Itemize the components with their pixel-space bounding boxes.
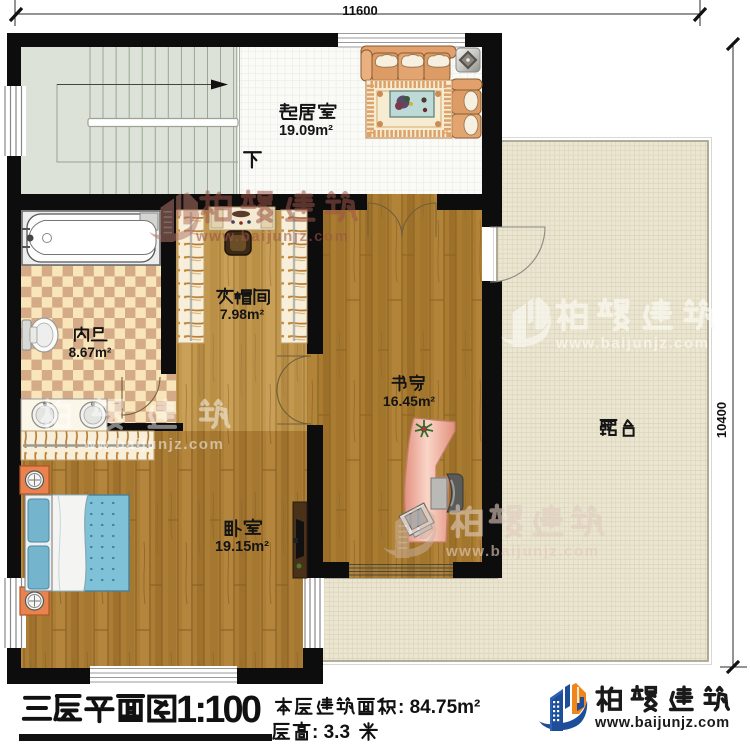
svg-text:1:100: 1:100 — [176, 689, 262, 731]
svg-text:www.baijunjz.com: www.baijunjz.com — [195, 228, 349, 245]
svg-text:www.baijunjz.com: www.baijunjz.com — [555, 335, 709, 352]
svg-text:: 84.75m²: : 84.75m² — [398, 697, 480, 718]
svg-text:ww.baijunjz.com: ww.baijunjz.com — [83, 436, 224, 453]
svg-text:8.67m²: 8.67m² — [69, 345, 112, 360]
svg-text:7.98m²: 7.98m² — [220, 306, 265, 322]
svg-text:19.15m²: 19.15m² — [215, 539, 269, 555]
svg-text:16.45m²: 16.45m² — [383, 393, 435, 409]
svg-text:: 3.3: : 3.3 — [312, 722, 350, 743]
svg-text:19.09m²: 19.09m² — [279, 123, 333, 139]
svg-text:www.baijunjz.com: www.baijunjz.com — [594, 715, 730, 731]
svg-text:www.baijunjz.com: www.baijunjz.com — [445, 543, 599, 560]
svg-text:11600: 11600 — [342, 3, 377, 18]
svg-text:10400: 10400 — [714, 402, 729, 438]
